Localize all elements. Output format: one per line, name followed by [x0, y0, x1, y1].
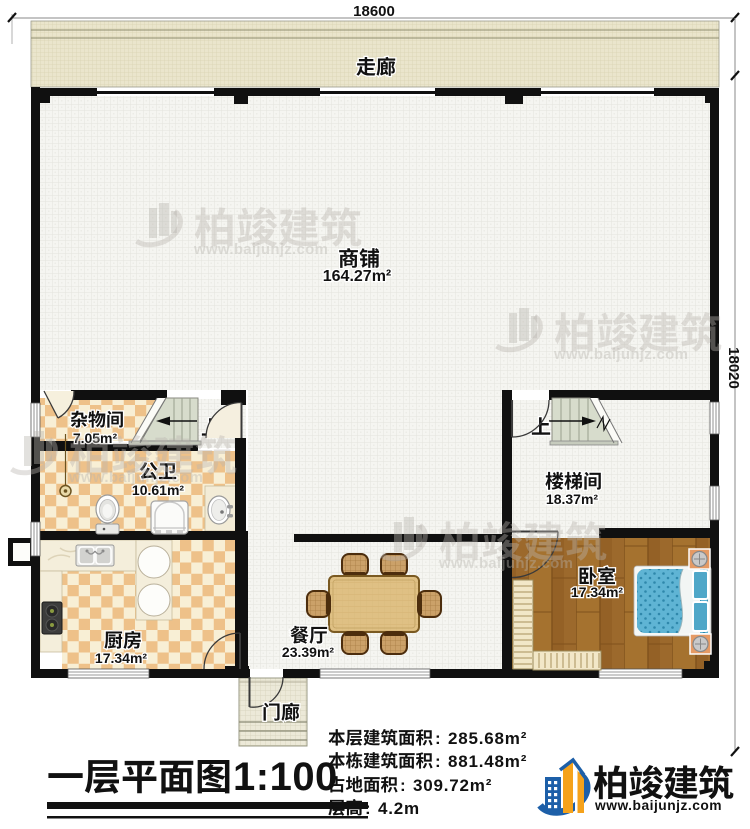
svg-text:18.37m²: 18.37m² — [546, 491, 598, 507]
svg-text:18020: 18020 — [725, 347, 742, 389]
svg-text:www.baijunjz.com: www.baijunjz.com — [193, 241, 328, 258]
svg-text:www.baijunjz.com: www.baijunjz.com — [438, 555, 573, 572]
svg-text::: : — [365, 799, 371, 818]
svg-text:285.68m²: 285.68m² — [448, 729, 527, 748]
svg-text::: : — [435, 729, 441, 748]
svg-text:881.48m²: 881.48m² — [448, 752, 527, 771]
svg-text:www.baijunjz.com: www.baijunjz.com — [594, 798, 722, 813]
svg-text:17.34m²: 17.34m² — [95, 650, 147, 666]
svg-text:309.72m²: 309.72m² — [413, 776, 492, 795]
svg-text:23.39m²: 23.39m² — [282, 644, 334, 660]
svg-text:www.baijunjz.com: www.baijunjz.com — [553, 346, 688, 363]
svg-text:4.2m: 4.2m — [378, 799, 420, 818]
svg-text:1:100: 1:100 — [233, 755, 338, 799]
svg-text::: : — [435, 752, 441, 771]
svg-text:www.baijunjz.com: www.baijunjz.com — [68, 469, 203, 486]
svg-text:164.27m²: 164.27m² — [323, 268, 392, 285]
svg-text::: : — [400, 776, 406, 795]
svg-text:17.34m²: 17.34m² — [571, 584, 623, 600]
svg-text:18600: 18600 — [353, 3, 395, 20]
